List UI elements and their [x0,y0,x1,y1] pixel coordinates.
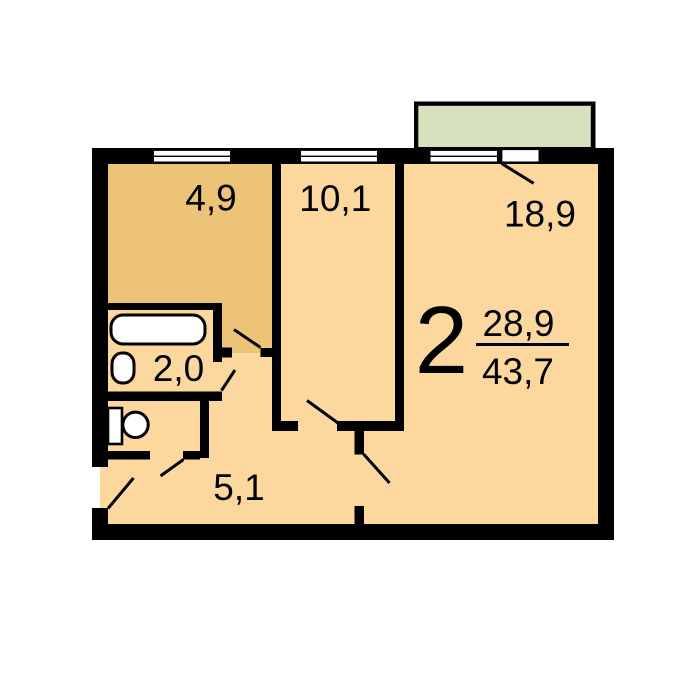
svg-text:43,7: 43,7 [482,351,554,392]
svg-text:10,1: 10,1 [299,178,371,219]
svg-text:5,1: 5,1 [213,467,264,508]
svg-text:2,0: 2,0 [153,348,204,389]
svg-text:18,9: 18,9 [504,194,576,235]
svg-text:2: 2 [415,287,468,394]
svg-text:28,9: 28,9 [482,303,554,344]
svg-text:4,9: 4,9 [185,178,236,219]
